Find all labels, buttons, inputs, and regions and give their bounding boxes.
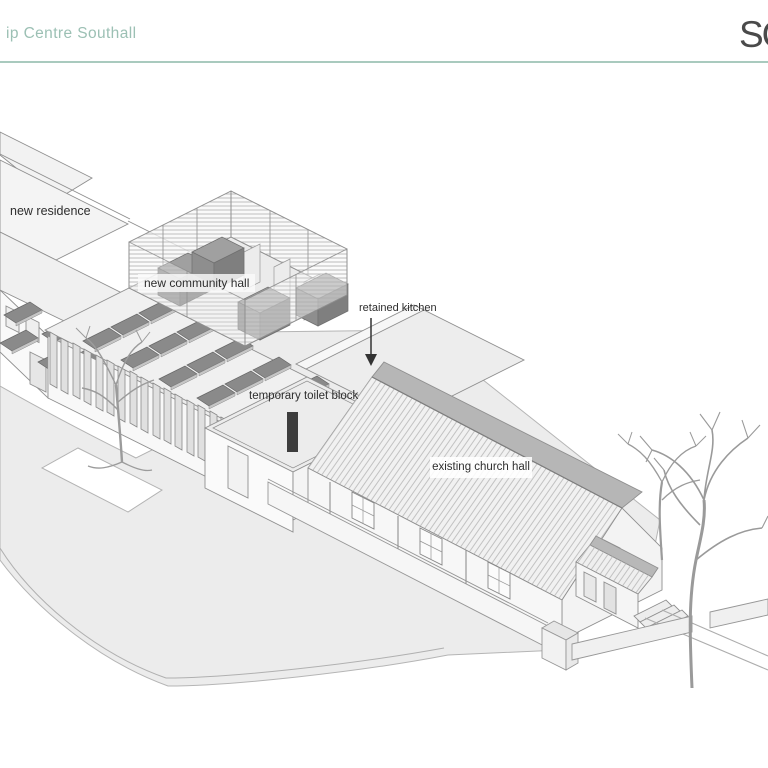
- site-axonometric-drawing: [0, 0, 768, 768]
- label-new-community-hall: new community hall: [138, 274, 255, 292]
- label-existing-church-hall: existing church hall: [430, 457, 532, 478]
- header-rule: [0, 61, 768, 63]
- label-retained-kitchen: retained kitchen: [359, 302, 437, 314]
- sheet-title: ip Centre Southall: [6, 25, 136, 43]
- toilet-block-marker: [287, 412, 298, 452]
- company-logo: SC: [739, 14, 768, 56]
- porch-door: [604, 582, 616, 614]
- label-temporary-toilet-block: temporary toilet block: [249, 390, 358, 402]
- label-new-residence: new residence: [10, 204, 91, 218]
- drawing-sheet: ip Centre Southall SC new residence new …: [0, 0, 768, 768]
